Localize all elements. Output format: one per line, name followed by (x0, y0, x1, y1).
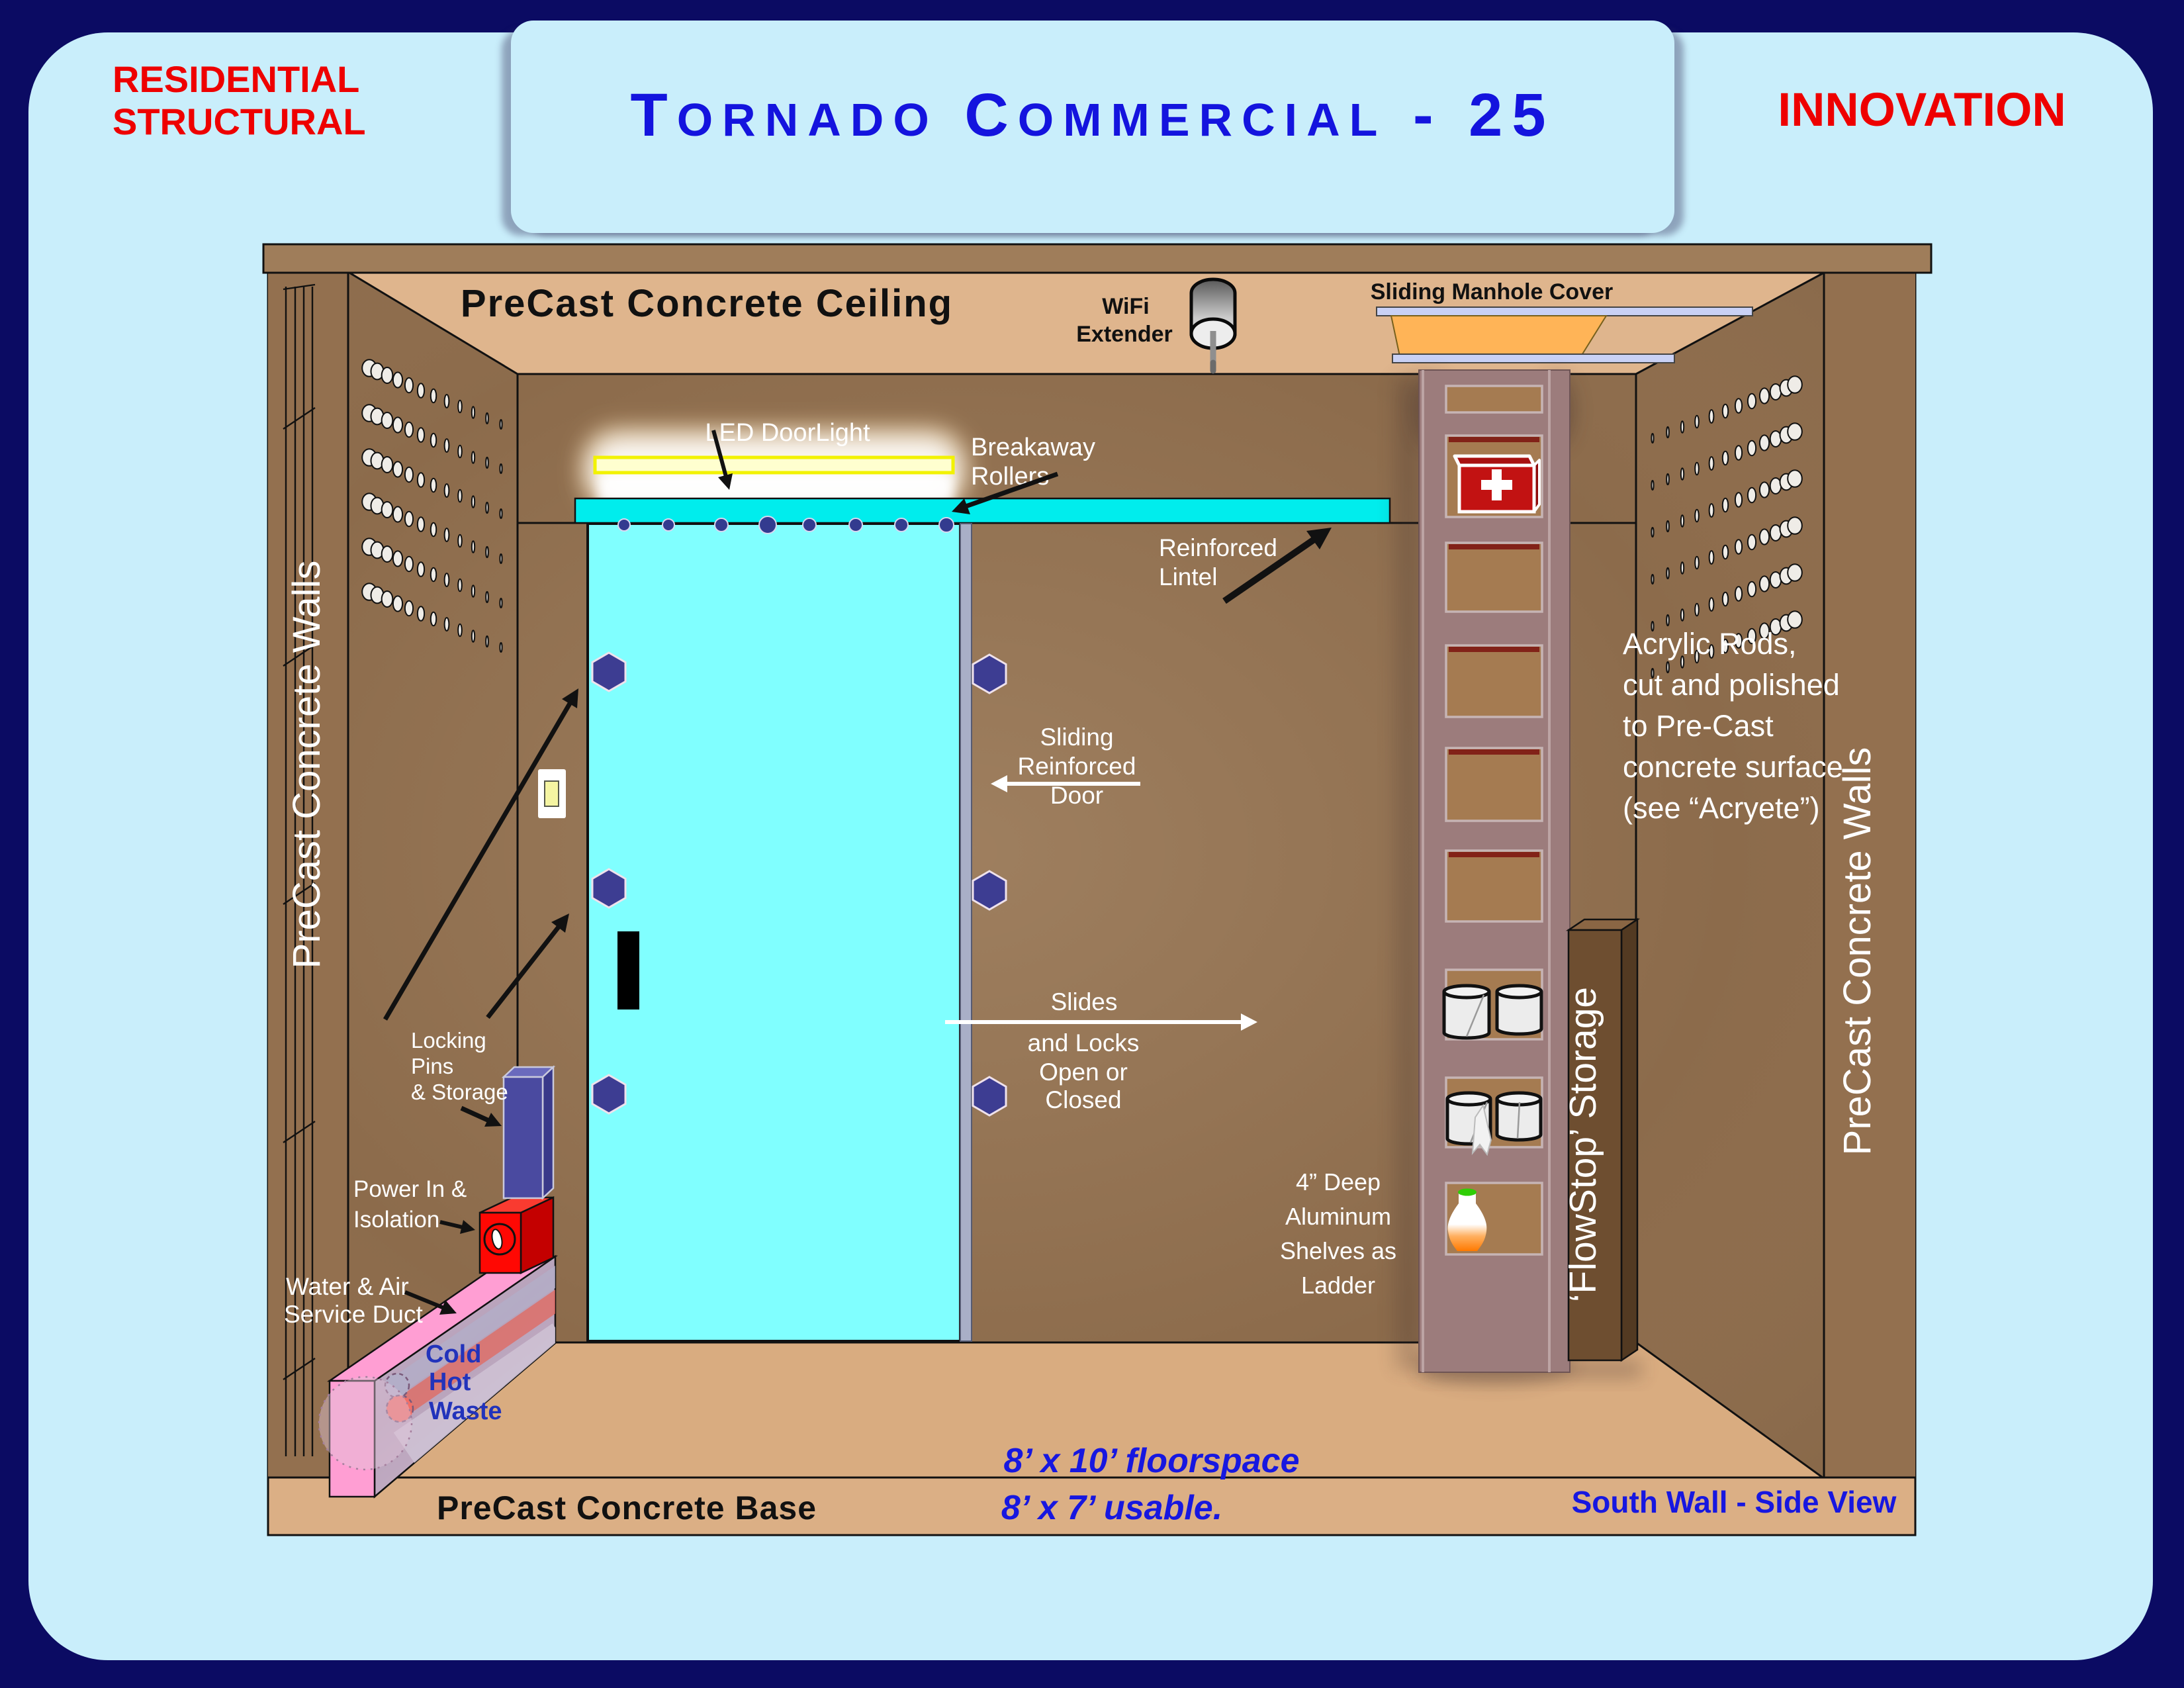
svg-text:Rollers: Rollers (971, 463, 1049, 491)
svg-text:4” Deep: 4” Deep (1296, 1168, 1381, 1196)
svg-text:(see “Acryete”): (see “Acryete”) (1623, 791, 1820, 825)
svg-text:South Wall - Side View: South Wall - Side View (1572, 1485, 1897, 1519)
svg-text:Service Duct: Service Duct (284, 1301, 423, 1328)
svg-text:Closed: Closed (1045, 1086, 1121, 1113)
svg-text:Extender: Extender (1076, 322, 1173, 347)
svg-text:cut and polished: cut and polished (1623, 668, 1840, 702)
svg-text:‘FlowStop’ Storage: ‘FlowStop’ Storage (1562, 987, 1604, 1302)
svg-text:Ladder: Ladder (1301, 1272, 1375, 1299)
svg-text:PreCast Concrete Walls: PreCast Concrete Walls (285, 561, 328, 969)
svg-text:Sliding: Sliding (1040, 724, 1113, 751)
svg-text:Slides: Slides (1051, 988, 1118, 1015)
svg-text:8’ x 7’ usable.: 8’ x 7’ usable. (1001, 1489, 1222, 1527)
svg-text:Waste: Waste (429, 1397, 502, 1425)
svg-text:Reinforced: Reinforced (1018, 753, 1136, 780)
svg-text:Isolation: Isolation (353, 1207, 439, 1233)
svg-text:Sliding Manhole Cover: Sliding Manhole Cover (1371, 279, 1613, 305)
svg-text:Reinforced: Reinforced (1159, 534, 1277, 561)
svg-text:concrete surface: concrete surface (1623, 750, 1843, 784)
svg-text:and Locks: and Locks (1028, 1029, 1140, 1056)
svg-text:WiFi: WiFi (1102, 294, 1149, 319)
svg-text:Aluminum: Aluminum (1285, 1203, 1391, 1230)
svg-text:Open or: Open or (1039, 1058, 1128, 1086)
svg-text:Acrylic Rods,: Acrylic Rods, (1623, 627, 1797, 661)
svg-text:Pins: Pins (411, 1054, 453, 1078)
svg-text:8’ x 10’ floorspace: 8’ x 10’ floorspace (1003, 1442, 1299, 1480)
svg-text:Power In &: Power In & (353, 1176, 467, 1202)
svg-text:PreCast Concrete Base: PreCast Concrete Base (437, 1489, 817, 1526)
svg-text:Locking: Locking (411, 1028, 486, 1053)
svg-text:Shelves as: Shelves as (1280, 1237, 1396, 1264)
svg-text:LED DoorLight: LED DoorLight (705, 419, 870, 447)
svg-text:PreCast Concrete Walls: PreCast Concrete Walls (1836, 747, 1879, 1156)
svg-text:& Storage: & Storage (411, 1080, 508, 1104)
svg-text:Door: Door (1050, 782, 1103, 809)
svg-text:to Pre-Cast: to Pre-Cast (1623, 709, 1774, 743)
svg-text:Hot: Hot (429, 1368, 471, 1396)
svg-text:Cold: Cold (426, 1340, 481, 1368)
svg-text:Water & Air: Water & Air (286, 1273, 409, 1300)
svg-text:Breakaway: Breakaway (971, 434, 1095, 461)
svg-text:PreCast Concrete Ceiling: PreCast Concrete Ceiling (461, 282, 953, 325)
svg-text:Lintel: Lintel (1159, 563, 1217, 590)
